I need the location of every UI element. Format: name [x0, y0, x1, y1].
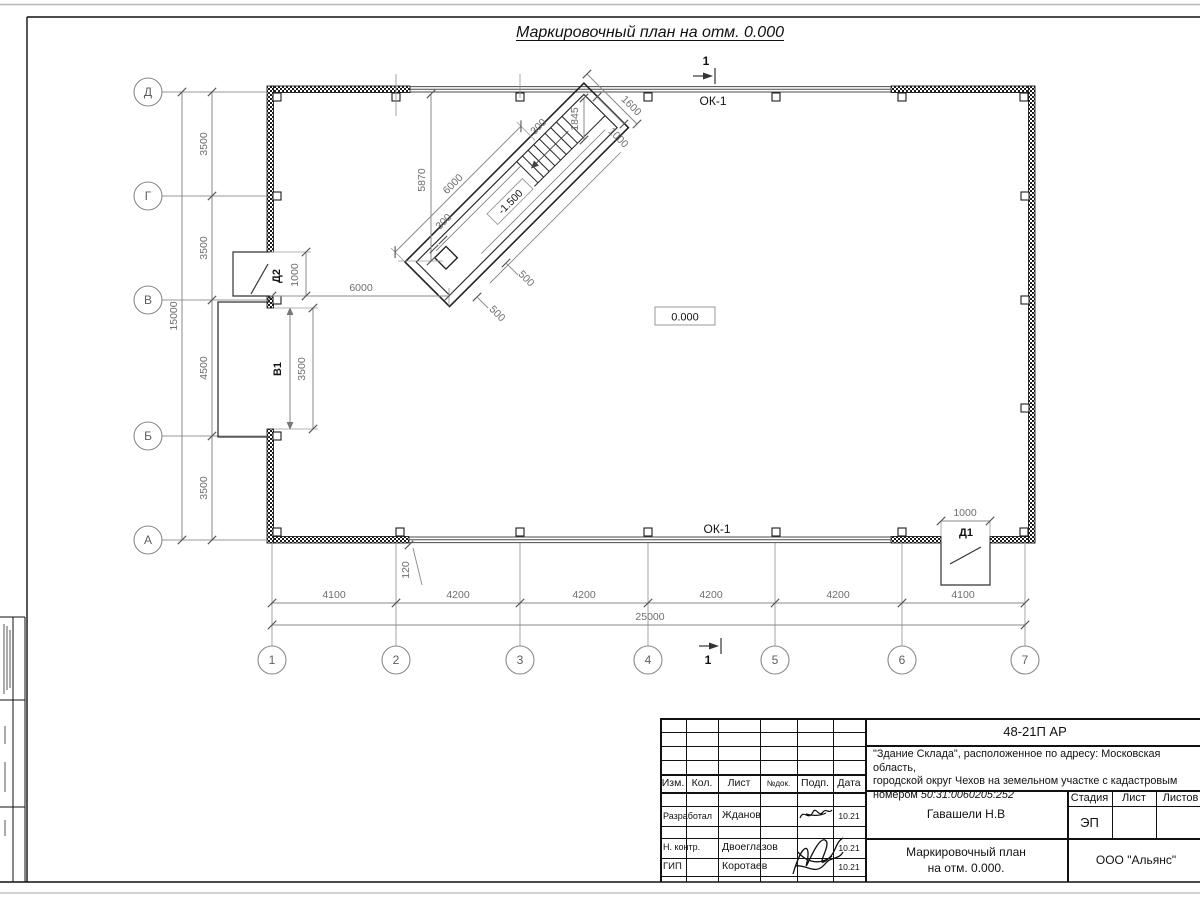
level-zero-mark: 0.000: [655, 307, 715, 325]
section-mark-top: 1: [693, 54, 715, 84]
doc-number: 48-21П АР: [865, 718, 1200, 745]
axis-label: Б: [144, 429, 152, 443]
dim-label: 3500: [198, 476, 210, 500]
gate-v1: В1 3500: [218, 302, 318, 437]
axis-label: 7: [1022, 653, 1029, 667]
gate-label: В1: [272, 362, 284, 376]
stage-label: Стадия: [1067, 790, 1112, 806]
axis-label: 5: [772, 653, 779, 667]
side-stamp: [0, 617, 25, 882]
dim-label: 500: [487, 303, 508, 324]
dim-left: 3500 3500 4500 3500 15000: [168, 88, 216, 544]
dim-label: 4200: [446, 589, 470, 601]
company-name: ООО "Альянс": [1067, 838, 1200, 882]
row-role: ГИП: [663, 861, 682, 872]
page-title: Маркировочный план на отм. 0.000: [430, 22, 870, 44]
axis-label: Г: [145, 189, 152, 203]
col-list: Лист: [718, 774, 760, 792]
col-data: Дата: [833, 774, 865, 792]
sheets-label: Листов: [1156, 790, 1200, 806]
dim-label: 1845: [569, 107, 581, 131]
dim-label: 6000: [441, 172, 466, 197]
drawing-name-line: Маркировочный план: [906, 844, 1026, 860]
stage-value: ЭП: [1067, 806, 1112, 838]
row-date: 10.21: [833, 838, 865, 858]
level-zero-value: 0.000: [671, 312, 699, 324]
dim-total-label: 25000: [635, 611, 664, 623]
window-band: [409, 87, 891, 543]
section-mark-bottom: 1: [699, 638, 721, 667]
axis-label: 4: [645, 653, 652, 667]
dim-label: 6000: [349, 282, 373, 294]
dim-label: 1000: [289, 263, 301, 287]
dim-label: 3500: [198, 132, 210, 156]
dim-label: 4100: [322, 589, 346, 601]
axis-label: А: [144, 533, 152, 547]
window-label-bottom: ОК-1: [704, 522, 731, 536]
dim-label: 3500: [198, 236, 210, 260]
door-d2: Д2 1000: [233, 248, 311, 300]
dim-label: 5870: [416, 168, 428, 192]
ramp-structure: -1.500 6000 300 5870 6000 1845: [268, 64, 644, 324]
window-label-top: ОК-1: [700, 94, 727, 108]
axis-label: 2: [393, 653, 400, 667]
columns: [273, 93, 1029, 536]
col-podp: Подп.: [797, 774, 833, 792]
dim-label: 4200: [699, 589, 723, 601]
col-ndok: №док.: [760, 774, 797, 792]
dim-label: 1000: [953, 507, 977, 519]
drawing-sheet: { "plan": { "title": "Маркировочный план…: [0, 0, 1200, 900]
axis-label: 6: [899, 653, 906, 667]
row-name: Двоеглазов: [722, 841, 778, 853]
section-number: 1: [703, 54, 710, 68]
door-label: Д1: [959, 527, 973, 539]
description-line: "Здание Склада", расположенное по адресу…: [873, 748, 1200, 775]
dim-label: 4500: [198, 356, 210, 380]
row-name: Жданов: [722, 809, 761, 821]
row-name: Коротаев: [722, 860, 767, 872]
dim-label: 500: [516, 268, 537, 289]
drawing-name-line: на отм. 0.000.: [928, 860, 1005, 876]
axis-label: В: [144, 293, 152, 307]
dim-label: 4100: [951, 589, 975, 601]
dim-label: 300: [433, 211, 454, 232]
axis-label: Д: [144, 85, 152, 99]
description-line: городской округ Чехов на земельном участ…: [873, 775, 1200, 789]
dim-label: 4200: [572, 589, 596, 601]
dim-offset-label: 120: [400, 561, 412, 579]
ramp-dims: 5870 6000 1845 1600 1000 300 500: [268, 70, 644, 325]
author-name: Гавашели Н.В: [865, 790, 1067, 838]
row-date: 10.21: [833, 858, 865, 876]
row-date: 10.21: [833, 806, 865, 826]
dim-label: 4200: [826, 589, 850, 601]
axis-label: 3: [517, 653, 524, 667]
walls: [267, 86, 1035, 543]
axis-label: 1: [269, 653, 276, 667]
dim-label: 3500: [296, 357, 308, 381]
col-kol: Кол.: [686, 774, 718, 792]
door-label: Д2: [271, 269, 283, 283]
door-d1: Д1 1000: [937, 507, 994, 585]
dim-label: 1600: [619, 93, 644, 118]
row-role: Разработал: [663, 811, 712, 821]
drawing-name: Маркировочный план на отм. 0.000.: [865, 838, 1067, 882]
row-role: Н. контр.: [663, 842, 700, 852]
sheet-label: Лист: [1112, 790, 1156, 806]
section-number: 1: [705, 653, 712, 667]
axis-lines: [162, 74, 1025, 646]
dim-total-label: 15000: [168, 301, 180, 330]
title-block: Изм. Кол. Лист №док. Подп. Дата Разработ…: [660, 718, 1200, 882]
dim-bottom: 4100 4200 4200 4200 4200 4100 25000 120: [268, 541, 1029, 629]
col-izm: Изм.: [660, 774, 686, 792]
